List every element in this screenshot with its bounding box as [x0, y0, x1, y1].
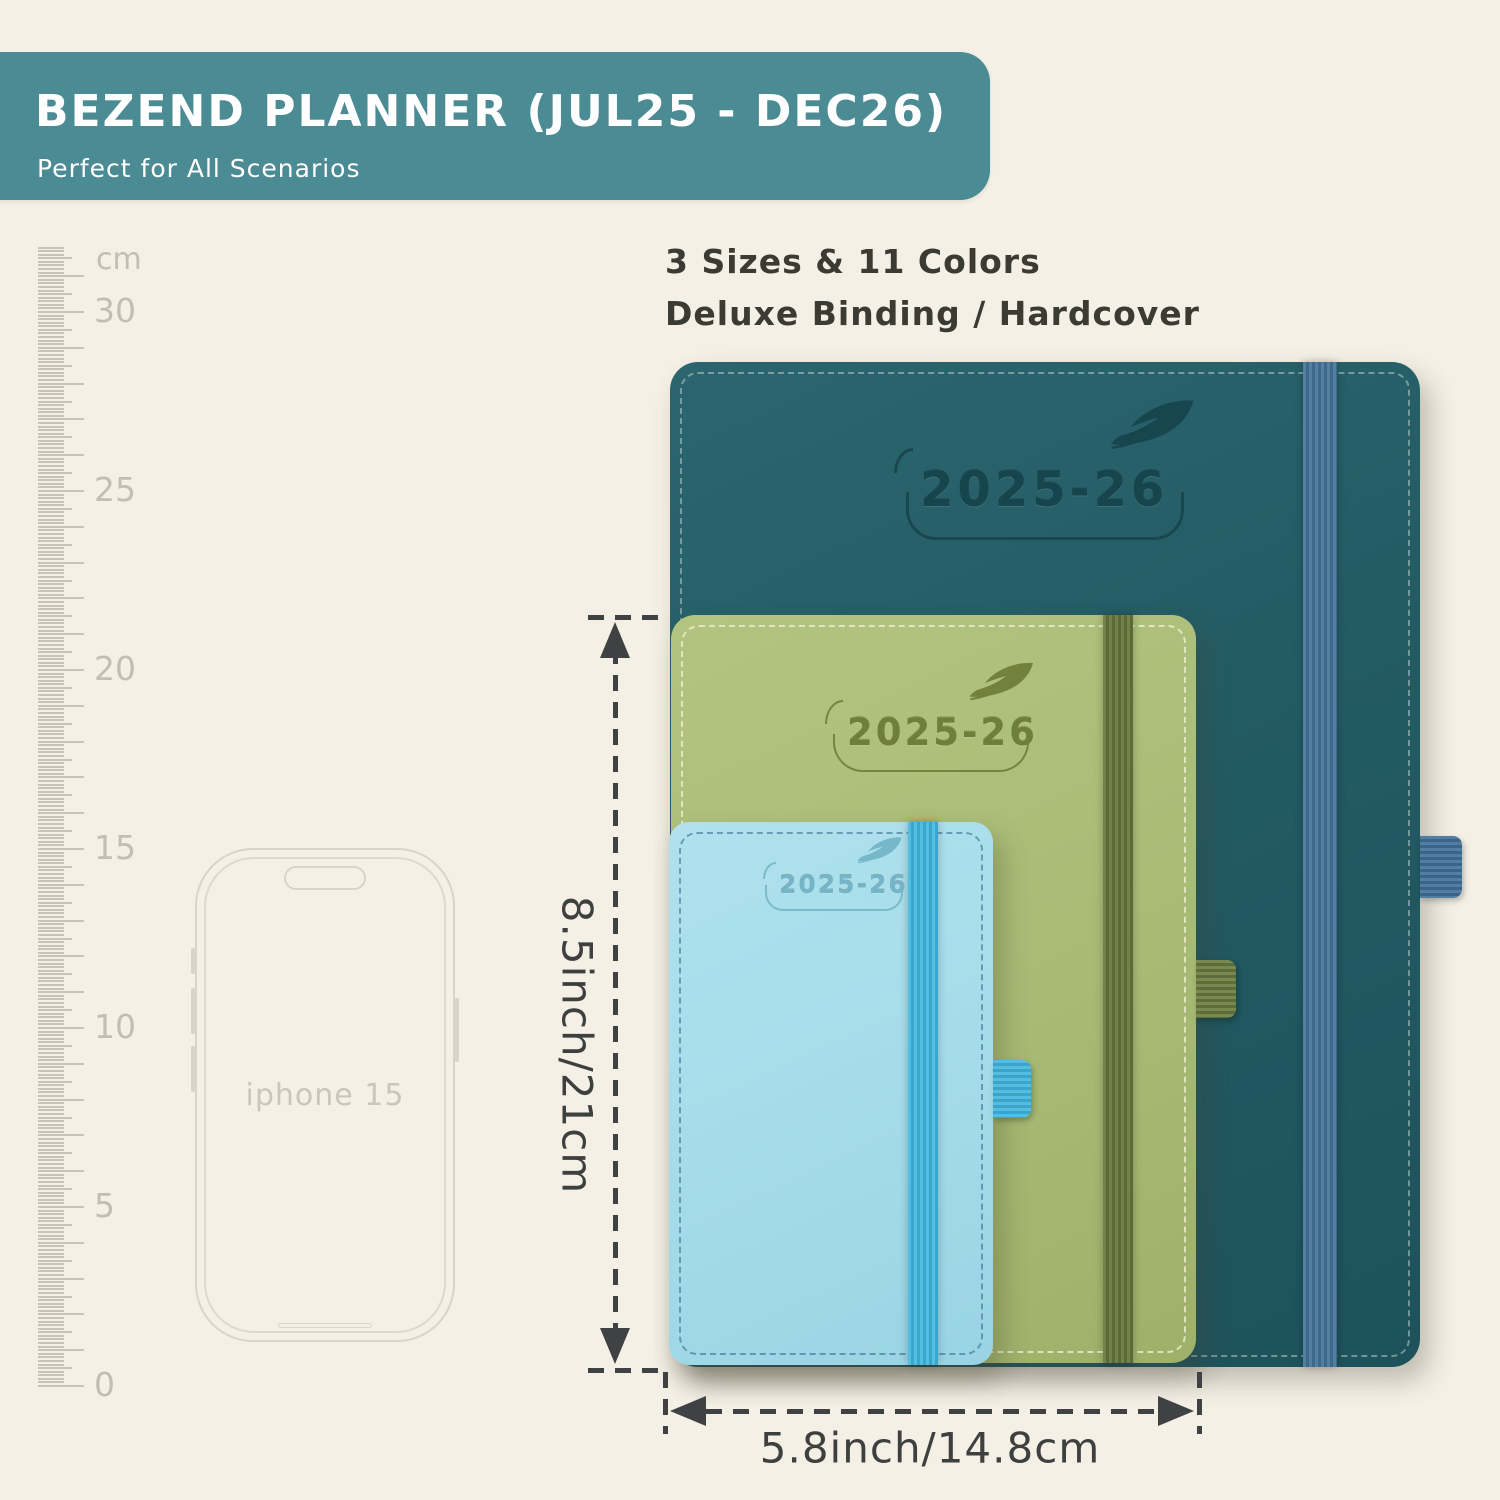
width-dimension-label: 5.8inch/14.8cm [760, 1424, 1100, 1473]
phone-side-button [191, 988, 195, 1034]
logo-paren-decoration [763, 862, 776, 879]
ruler-number-label: 10 [94, 1007, 136, 1046]
feature-line-sizes-colors: 3 Sizes & 11 Colors [665, 242, 1200, 281]
pen-loop [1420, 836, 1462, 898]
feather-icon [969, 661, 1035, 702]
phone-side-button [191, 1046, 195, 1092]
pen-loop [993, 1060, 1031, 1118]
planner-small-cover: 2025-26 [669, 822, 993, 1365]
dimension-cap-top [588, 615, 658, 620]
dimension-cap-bottom [588, 1368, 658, 1373]
phone-model-label: iphone 15 [197, 1078, 453, 1113]
cover-logo: 2025-26 [779, 870, 889, 902]
arrow-down-icon [600, 1328, 630, 1364]
dimension-line-horizontal [706, 1409, 1162, 1414]
ruler-number-label: 15 [94, 828, 136, 867]
dimension-cap-left [663, 1372, 668, 1434]
phone-side-button [191, 948, 195, 974]
arrow-left-icon [670, 1396, 706, 1426]
phone-speaker-line [278, 1323, 372, 1328]
feather-icon [1110, 398, 1196, 451]
ruler-number-label: 20 [94, 649, 136, 688]
height-dimension-label: 8.5inch/21cm [553, 896, 602, 1194]
cover-logo: 2025-26 [847, 711, 1015, 759]
ruler-number-label: 30 [94, 291, 136, 330]
arrow-up-icon [600, 622, 630, 658]
ruler: cm 302520151050 [38, 0, 178, 1500]
feather-icon [857, 836, 903, 865]
dimension-line-vertical [613, 648, 618, 1340]
phone-side-button [455, 998, 459, 1062]
elastic-band [1303, 362, 1337, 1367]
dynamic-island [284, 866, 366, 890]
iphone-outline: iphone 15 [195, 848, 455, 1342]
elastic-band [908, 822, 938, 1365]
logo-bracket-decoration [906, 492, 1184, 540]
arrow-right-icon [1158, 1396, 1194, 1426]
logo-bracket-decoration [833, 734, 1029, 772]
logo-paren-decoration [825, 700, 843, 724]
logo-bracket-decoration [765, 885, 903, 911]
ruler-unit-label: cm [96, 242, 142, 277]
feature-line-binding: Deluxe Binding / Hardcover [665, 294, 1200, 333]
ruler-number-label: 0 [94, 1365, 115, 1404]
feature-text: 3 Sizes & 11 Colors Deluxe Binding / Har… [665, 242, 1200, 333]
elastic-band [1103, 615, 1133, 1363]
ruler-number-label: 5 [94, 1186, 115, 1225]
logo-paren-decoration [894, 448, 913, 473]
product-image-canvas: BEZEND PLANNER (JUL25 - DEC26) Perfect f… [0, 0, 1500, 1500]
cover-logo: 2025-26 [920, 462, 1170, 524]
ruler-number-label: 25 [94, 470, 136, 509]
dimension-cap-right [1197, 1372, 1202, 1434]
pen-loop [1196, 960, 1236, 1018]
